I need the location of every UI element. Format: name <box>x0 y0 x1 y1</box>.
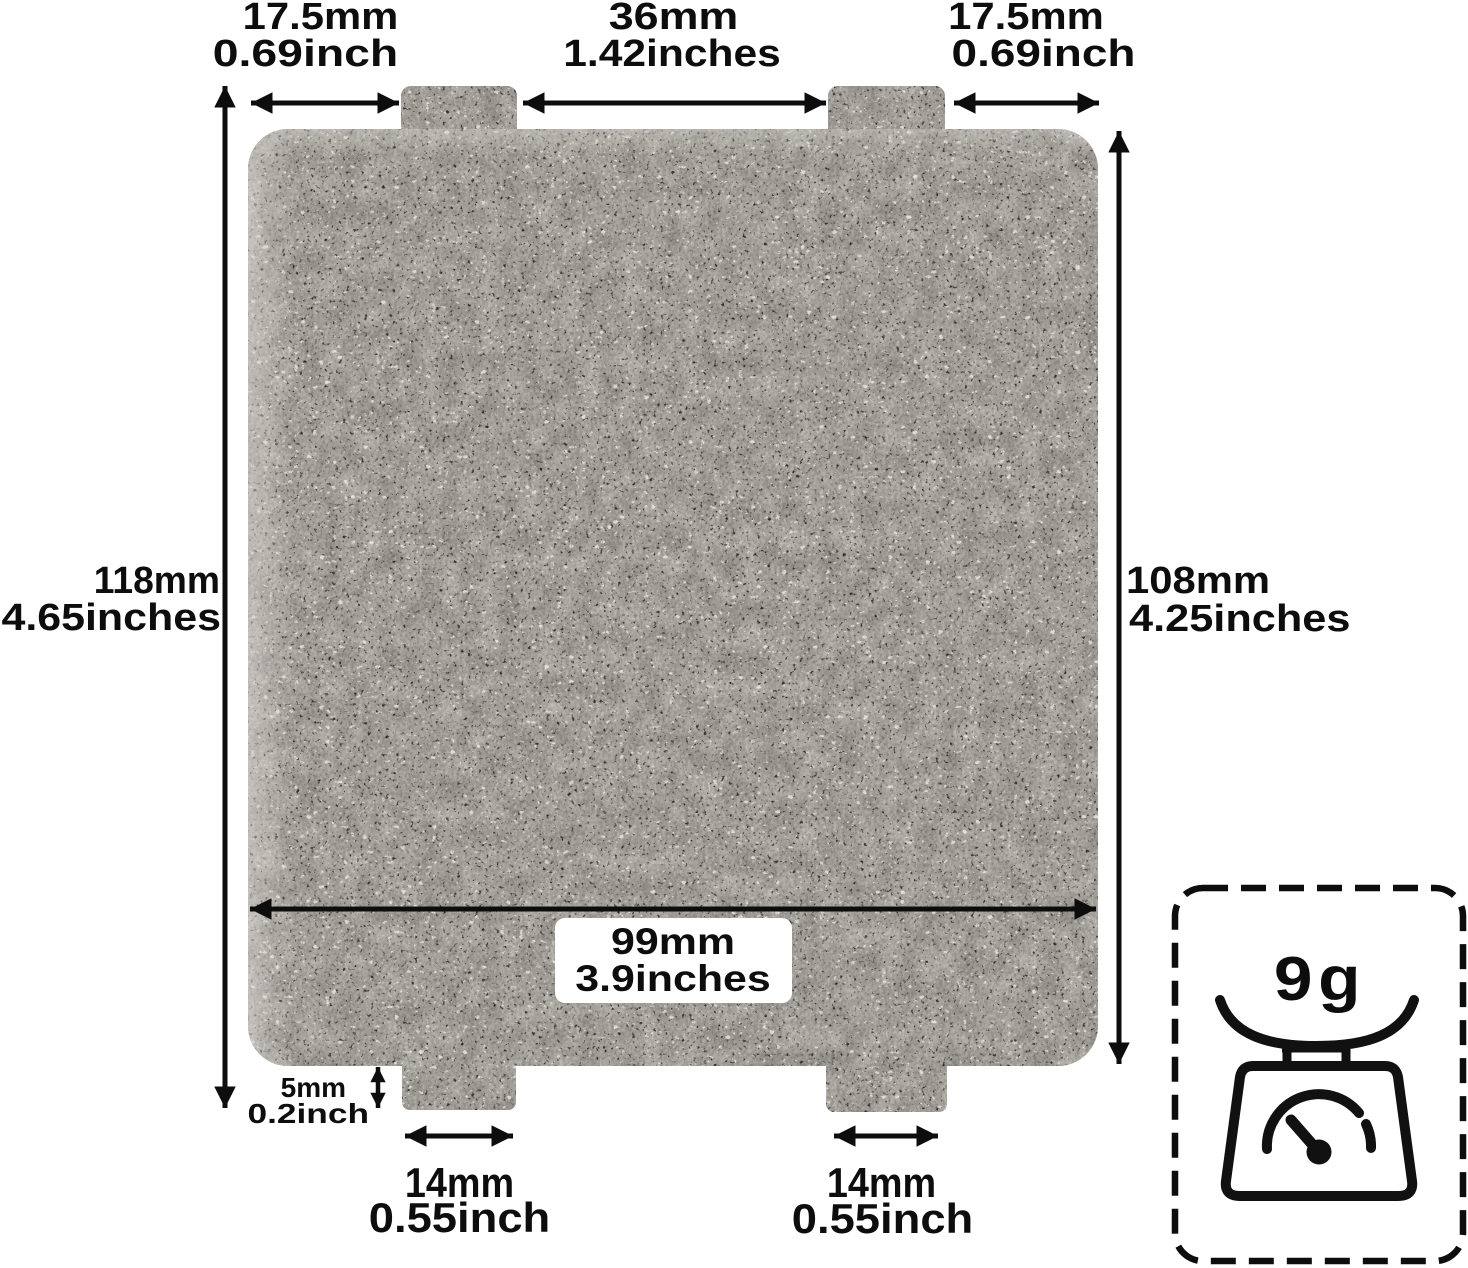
svg-text:108mm: 108mm <box>1126 560 1270 602</box>
svg-text:9g: 9g <box>1274 943 1366 1013</box>
svg-text:4.65inches: 4.65inches <box>1 595 221 638</box>
svg-text:4.25inches: 4.25inches <box>1129 596 1350 639</box>
svg-text:99mm: 99mm <box>611 922 735 963</box>
svg-text:0.55inch: 0.55inch <box>369 1195 550 1242</box>
svg-text:0.55inch: 0.55inch <box>792 1196 973 1243</box>
svg-text:0.2inch: 0.2inch <box>247 1098 369 1130</box>
svg-text:0.69inch: 0.69inch <box>952 32 1136 74</box>
svg-text:0.69inch: 0.69inch <box>213 32 398 74</box>
svg-text:3.9inches: 3.9inches <box>575 959 771 1000</box>
svg-text:1.42inches: 1.42inches <box>563 31 781 74</box>
